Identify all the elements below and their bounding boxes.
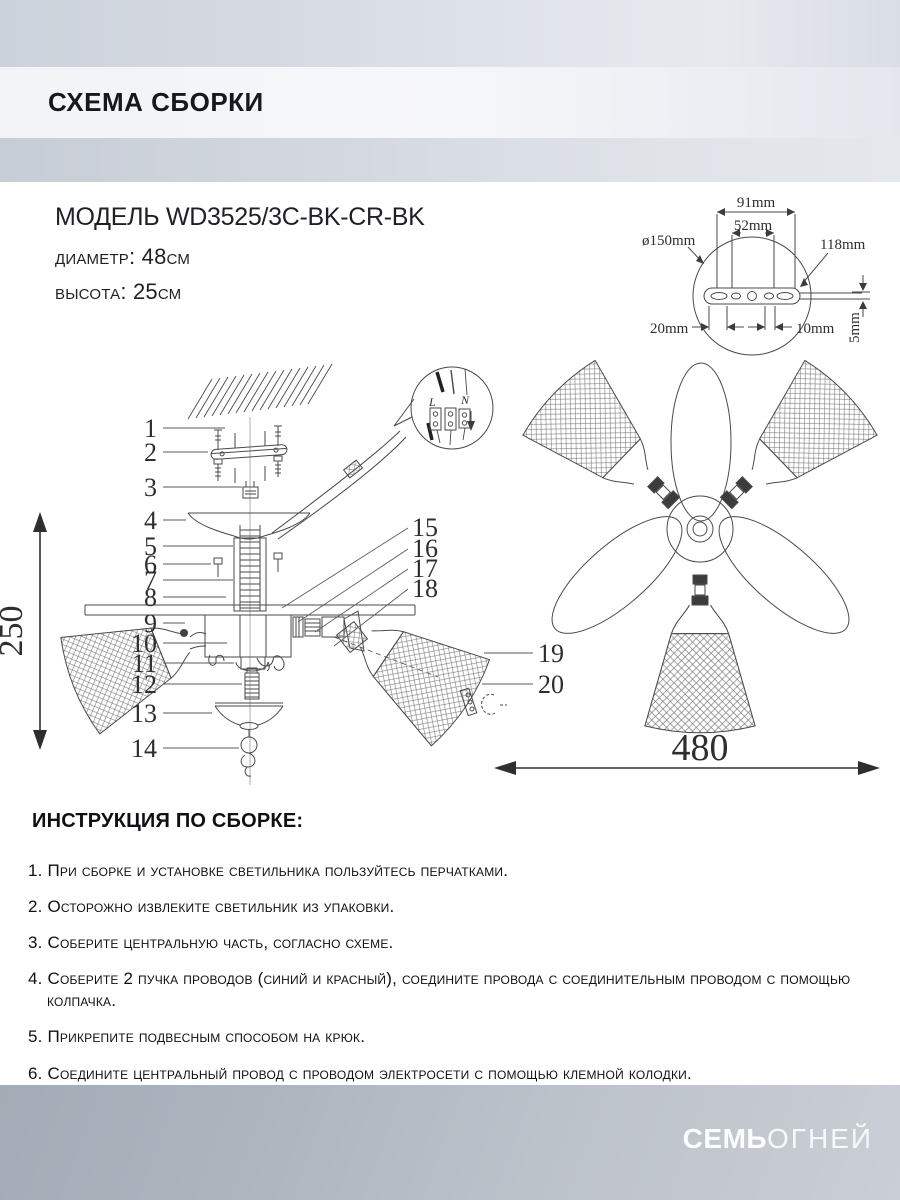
assembly-sheet: СХЕМА СБОРКИ МОДЕЛЬ WD3525/3C-BK-CR-BK д…	[0, 0, 900, 1200]
part-label: 2	[144, 438, 157, 467]
part-label: 3	[144, 473, 157, 502]
part-label: 8	[144, 583, 157, 612]
diameter-line: диаметр: 48см	[55, 244, 425, 270]
dimension-250: 250	[0, 512, 47, 750]
assembly-diagram: 250 480 1 2 3 4 5 6 7 8 9 10 11 12 13 14…	[0, 355, 900, 800]
dim-150: ø150mm	[642, 233, 696, 249]
sub-band	[0, 138, 900, 182]
dim-5: 5mm	[847, 312, 863, 343]
svg-text:480: 480	[672, 727, 729, 769]
instruction-item: 6. Соедините центральный провод с провод…	[28, 1063, 882, 1085]
dim-118: 118mm	[820, 237, 866, 253]
terminal-l-label: L	[428, 395, 436, 409]
part-label: 14	[131, 734, 157, 763]
instruction-item: 4. Соберите 2 пучка проводов (синий и кр…	[28, 968, 882, 1012]
dimension-480: 480	[494, 727, 880, 775]
mount-dimension-drawing: 91mm 52mm ø150mm 118mm 20mm 10mm 5mm	[612, 185, 897, 360]
part-label: 12	[131, 670, 157, 699]
title-band: СХЕМА СБОРКИ	[0, 67, 900, 138]
dim-91: 91mm	[737, 195, 776, 211]
dim-10: 10mm	[796, 321, 835, 337]
page-title: СХЕМА СБОРКИ	[48, 87, 264, 118]
instruction-item: 5. Прикрепите подвесным способом на крюк…	[28, 1026, 882, 1048]
instructions-title: ИНСТРУКЦИЯ ПО СБОРКЕ:	[32, 810, 882, 833]
instructions: ИНСТРУКЦИЯ ПО СБОРКЕ: 1. При сборке и ус…	[28, 810, 882, 1099]
brand-light: ОГНЕЙ	[767, 1123, 873, 1154]
part-label: 18	[412, 574, 438, 603]
instruction-item: 1. При сборке и установке светильника по…	[28, 860, 882, 882]
part-label: 4	[144, 506, 157, 535]
assembled-view	[460, 356, 882, 733]
product-info: МОДЕЛЬ WD3525/3C-BK-CR-BK диаметр: 48см …	[55, 203, 425, 314]
height-line: высота: 25см	[55, 279, 425, 305]
model-line: МОДЕЛЬ WD3525/3C-BK-CR-BK	[55, 203, 425, 232]
dim-20: 20mm	[650, 321, 689, 337]
part-label: 13	[131, 699, 157, 728]
terminal-n-label: N	[460, 393, 470, 407]
brand-bold: СЕМЬ	[683, 1123, 767, 1154]
part-label: 19	[538, 639, 564, 668]
footer-band: СЕМЬОГНЕЙ	[0, 1085, 900, 1200]
top-band	[0, 0, 900, 67]
instruction-item: 3. Соберите центральную часть, согласно …	[28, 932, 882, 954]
part-label: 20	[538, 670, 564, 699]
instruction-item: 2. Осторожно извлеките светильник из упа…	[28, 896, 882, 918]
dim-52: 52mm	[734, 218, 773, 234]
brand-logo: СЕМЬОГНЕЙ	[683, 1123, 873, 1155]
svg-text:250: 250	[0, 606, 30, 657]
